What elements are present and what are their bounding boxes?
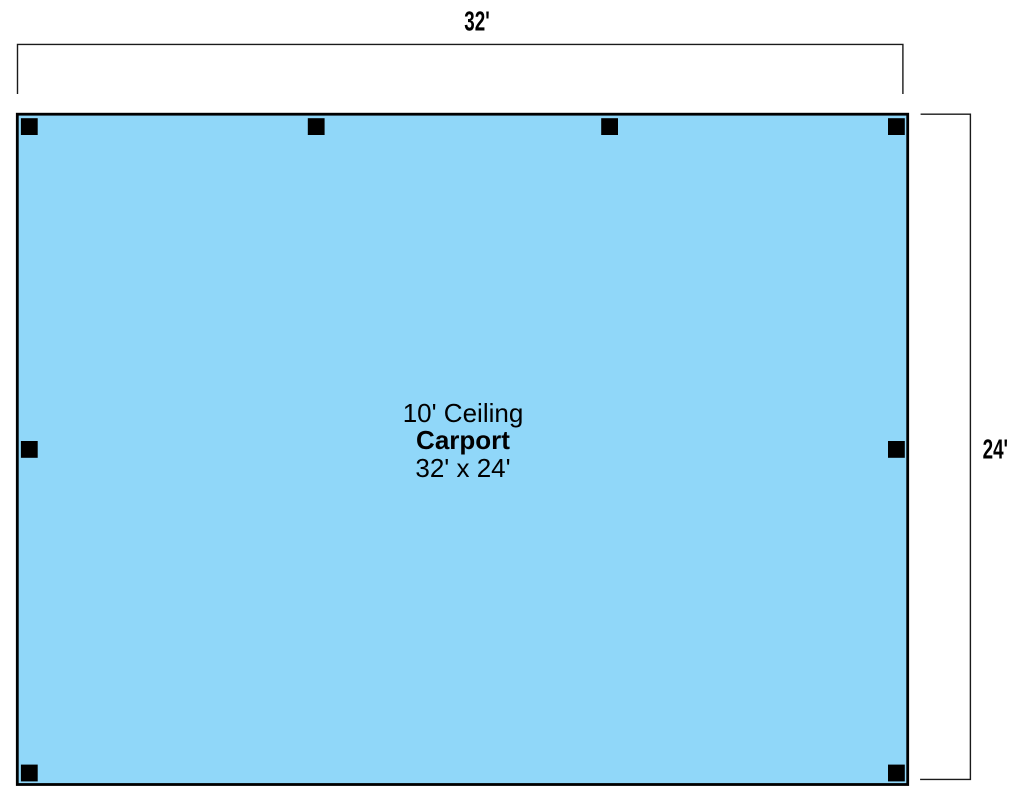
svg-text:24': 24': [983, 434, 1008, 466]
svg-text:32' x 24': 32' x 24': [415, 453, 510, 483]
svg-text:10' Ceiling: 10' Ceiling: [403, 398, 524, 428]
svg-text:Carport: Carport: [416, 425, 510, 455]
svg-text:32': 32': [464, 6, 489, 38]
